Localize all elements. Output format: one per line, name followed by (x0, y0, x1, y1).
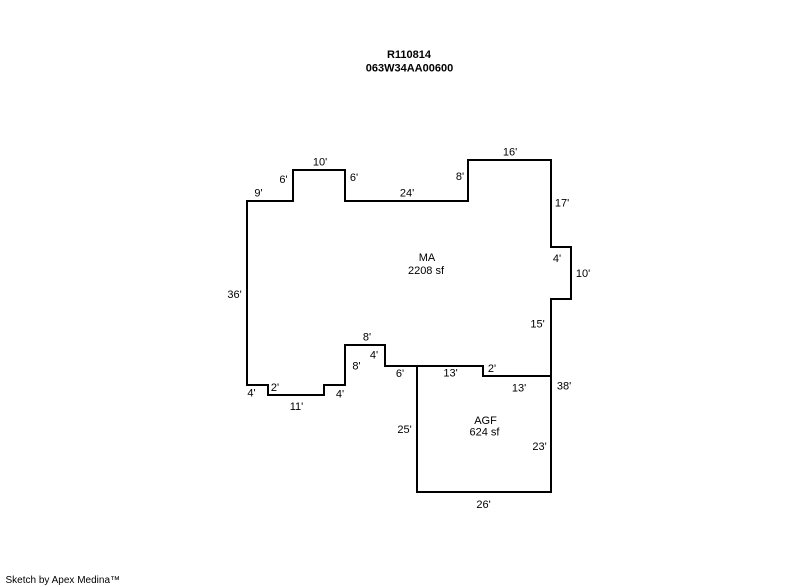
svg-text:9': 9' (254, 188, 262, 200)
svg-text:R110814: R110814 (387, 49, 432, 61)
svg-text:AGF: AGF (474, 415, 497, 427)
svg-text:4': 4' (553, 253, 561, 265)
svg-text:MA: MA (419, 252, 436, 264)
svg-text:24': 24' (400, 188, 414, 200)
svg-text:8': 8' (352, 361, 360, 373)
svg-text:25': 25' (397, 424, 411, 436)
svg-text:36': 36' (227, 289, 241, 301)
svg-text:10': 10' (576, 268, 590, 280)
svg-text:4': 4' (247, 388, 255, 400)
svg-text:10': 10' (313, 157, 327, 169)
svg-text:063W34AA00600: 063W34AA00600 (366, 63, 453, 75)
svg-text:2208 sf: 2208 sf (408, 265, 445, 277)
svg-text:8': 8' (456, 171, 464, 183)
svg-text:2': 2' (271, 382, 279, 394)
svg-text:13': 13' (512, 383, 526, 395)
svg-text:624 sf: 624 sf (470, 427, 501, 439)
svg-text:6': 6' (396, 368, 404, 380)
svg-text:2': 2' (488, 363, 496, 375)
svg-text:6': 6' (279, 174, 287, 186)
svg-text:15': 15' (530, 319, 544, 331)
svg-text:13': 13' (443, 368, 457, 380)
svg-text:26': 26' (476, 499, 490, 511)
svg-text:8': 8' (363, 332, 371, 344)
svg-text:16': 16' (503, 147, 517, 159)
svg-text:Sketch by Apex Medina™: Sketch by Apex Medina™ (6, 575, 121, 586)
svg-text:4': 4' (370, 350, 378, 362)
svg-text:6': 6' (350, 172, 358, 184)
svg-text:4': 4' (336, 389, 344, 401)
svg-text:17': 17' (555, 198, 569, 210)
svg-text:23': 23' (532, 441, 546, 453)
svg-text:38': 38' (557, 381, 571, 393)
svg-text:11': 11' (290, 401, 304, 413)
